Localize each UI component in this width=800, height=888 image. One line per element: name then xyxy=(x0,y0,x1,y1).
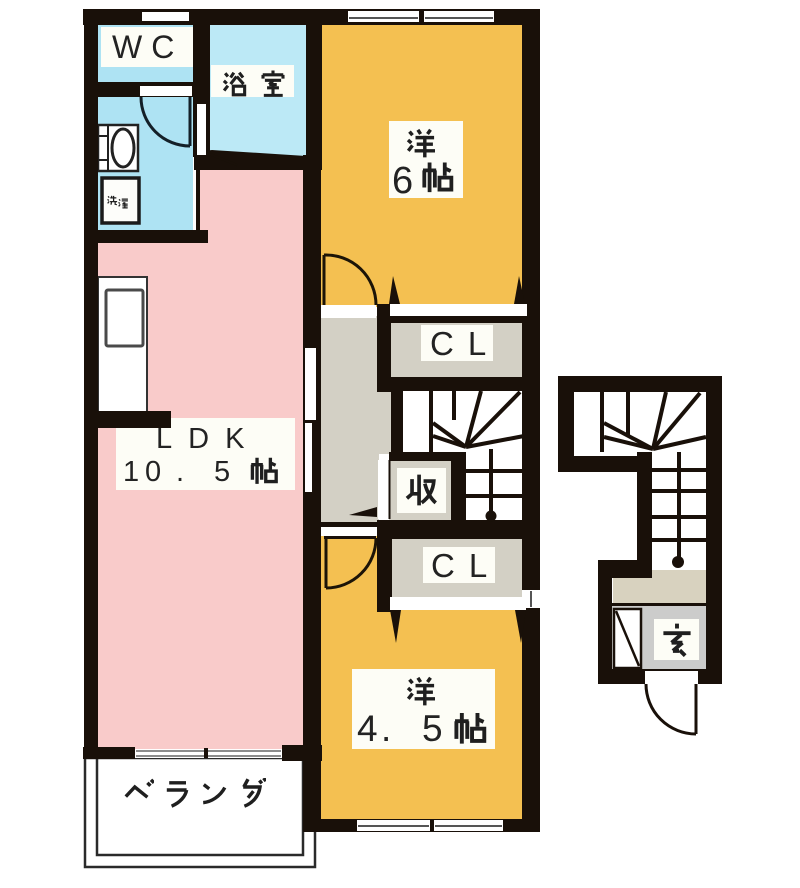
svg-text:0: 0 xyxy=(145,456,161,488)
svg-text:.: . xyxy=(176,456,184,488)
svg-text:5: 5 xyxy=(214,456,230,488)
svg-text:WC: WC xyxy=(112,29,183,65)
svg-text:1: 1 xyxy=(123,456,139,488)
svg-text:5: 5 xyxy=(422,708,443,749)
svg-text:LDK: LDK xyxy=(156,423,260,455)
svg-text:6: 6 xyxy=(392,160,413,202)
svg-text:4: 4 xyxy=(357,708,378,749)
svg-text:CL: CL xyxy=(431,547,501,584)
svg-text:.: . xyxy=(381,708,391,749)
svg-text:CL: CL xyxy=(430,325,500,362)
